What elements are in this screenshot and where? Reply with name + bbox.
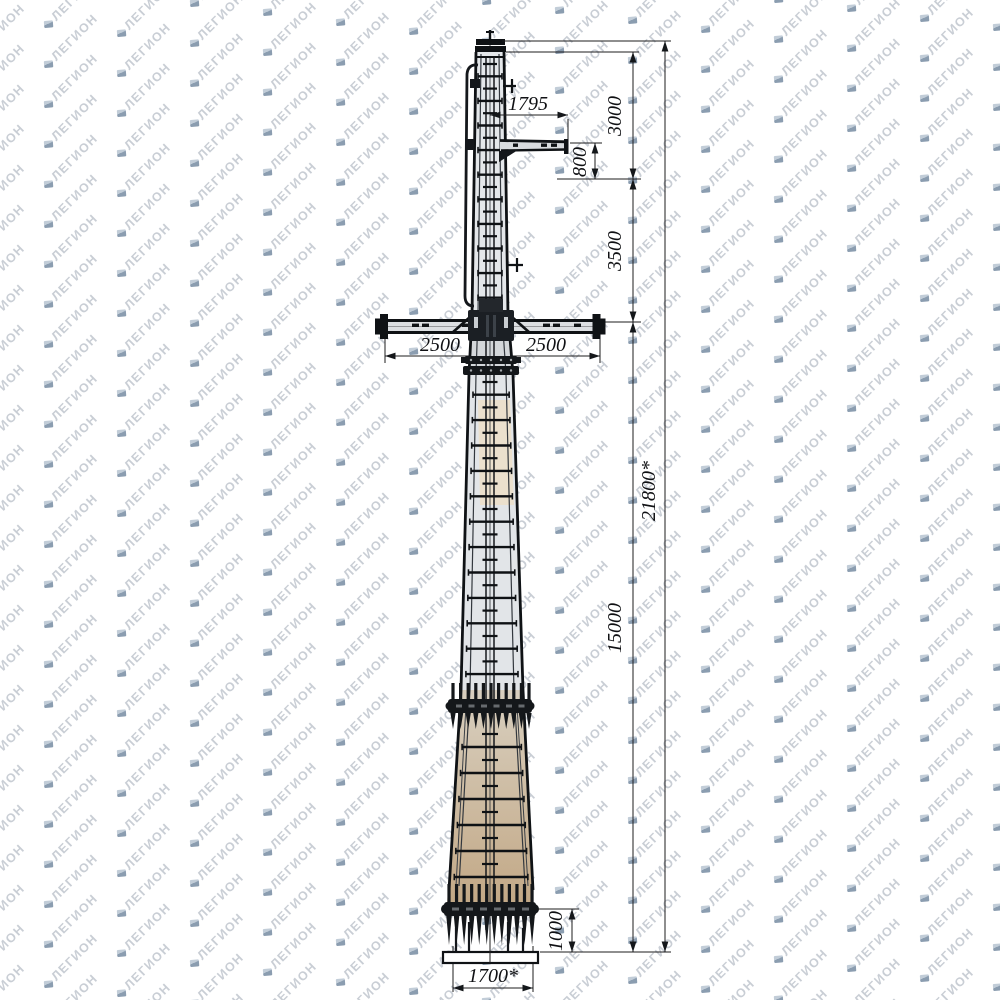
pole-technical-drawing: 1795 3000 800 3500 2500 2500 15000 21800… <box>0 0 1000 1000</box>
dim-label-2500-left: 2500 <box>420 334 460 356</box>
dim-label-1000: 1000 <box>545 911 567 951</box>
dim-label-3500: 3500 <box>604 231 626 272</box>
traverse-end-plate-left <box>380 314 388 339</box>
dim-label-21800: 21800* <box>638 461 660 521</box>
dim-label-800: 800 <box>569 147 591 177</box>
dim-label-2500-right: 2500 <box>526 334 566 356</box>
dim-label-1700: 1700* <box>468 965 518 987</box>
main-traverse <box>375 299 606 341</box>
dim-label-1795: 1795 <box>508 93 548 115</box>
drawing-canvas: ЛЕГИОНЛЕГИОНЛЕГИОНЛЕГИОНЛЕГИОНЛЕГИОНЛЕГИ… <box>0 0 1000 1000</box>
step-bolt-mid <box>507 258 523 272</box>
dim-label-15000: 15000 <box>604 603 626 653</box>
dim-label-3000: 3000 <box>604 96 626 137</box>
traverse-end-plate-right <box>593 314 601 339</box>
